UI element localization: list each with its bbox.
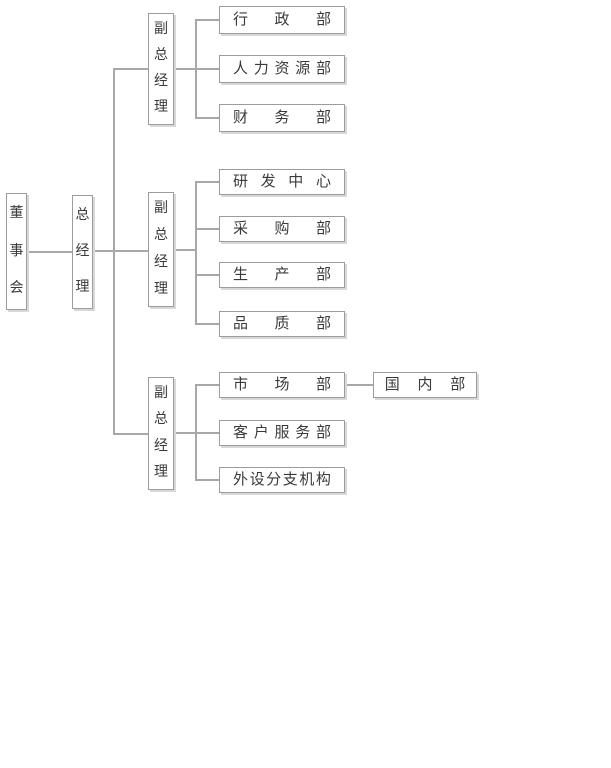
node-finance-dept: 财务部 bbox=[219, 104, 345, 132]
connector-vice1-distributor bbox=[195, 19, 197, 119]
node-label: 总经理 bbox=[76, 196, 90, 308]
node-quality-dept: 品质部 bbox=[219, 311, 345, 337]
node-label: 行政部 bbox=[233, 13, 331, 28]
node-customer-service-dept: 客户服务部 bbox=[219, 420, 345, 446]
connector-to-production bbox=[195, 274, 219, 276]
node-production-dept: 生产部 bbox=[219, 262, 345, 288]
connector-board-gm bbox=[26, 251, 72, 253]
node-label: 生产部 bbox=[233, 268, 331, 283]
node-domestic-dept: 国内部 bbox=[373, 372, 477, 398]
connector-to-quality bbox=[195, 323, 219, 325]
connector-gm-trunk bbox=[93, 250, 148, 252]
node-general-manager: 总经理 bbox=[72, 195, 93, 309]
connector-to-marketing bbox=[195, 384, 219, 386]
connector-to-rnd bbox=[195, 181, 219, 183]
node-label: 采购部 bbox=[233, 222, 331, 237]
node-purchasing-dept: 采购部 bbox=[219, 216, 345, 242]
node-marketing-dept: 市场部 bbox=[219, 372, 345, 398]
node-board-of-directors: 董事会 bbox=[6, 193, 27, 310]
connector-trunk bbox=[113, 68, 115, 435]
node-label: 品质部 bbox=[233, 317, 331, 332]
connector-trunk-vice3 bbox=[113, 433, 148, 435]
node-deputy-gm-3: 副总经理 bbox=[148, 377, 174, 490]
node-label: 人力资源部 bbox=[233, 62, 331, 77]
node-deputy-gm-1: 副总经理 bbox=[148, 13, 174, 125]
org-chart: 董事会 总经理 副总经理 副总经理 副总经理 行政部 人力资源部 财务部 研发中… bbox=[0, 0, 611, 768]
node-label: 副总经理 bbox=[154, 14, 168, 124]
node-label: 董事会 bbox=[10, 194, 24, 309]
connector-vice2-distributor bbox=[195, 181, 197, 325]
node-label: 客户服务部 bbox=[233, 426, 331, 441]
node-deputy-gm-2: 副总经理 bbox=[148, 192, 174, 307]
node-label: 副总经理 bbox=[154, 193, 168, 306]
connector-trunk-vice1 bbox=[113, 68, 148, 70]
node-hr-dept: 人力资源部 bbox=[219, 55, 345, 83]
connector-to-finance bbox=[195, 117, 219, 119]
connector-marketing-domestic bbox=[345, 384, 373, 386]
connector-to-purchasing bbox=[195, 228, 219, 230]
connector-vice3-distributor bbox=[195, 384, 197, 481]
connector-to-branches bbox=[195, 479, 219, 481]
node-label: 国内部 bbox=[385, 378, 466, 393]
node-rd-center: 研发中心 bbox=[219, 169, 345, 195]
node-admin-dept: 行政部 bbox=[219, 6, 345, 34]
node-label: 财务部 bbox=[233, 111, 331, 126]
node-label: 外设分支机构 bbox=[233, 473, 331, 488]
node-label: 研发中心 bbox=[233, 175, 331, 190]
connector-to-admin bbox=[195, 19, 219, 21]
node-branch-offices: 外设分支机构 bbox=[219, 467, 345, 493]
connector-vice2-branch bbox=[174, 249, 196, 251]
node-label: 副总经理 bbox=[154, 378, 168, 489]
node-label: 市场部 bbox=[233, 378, 331, 393]
